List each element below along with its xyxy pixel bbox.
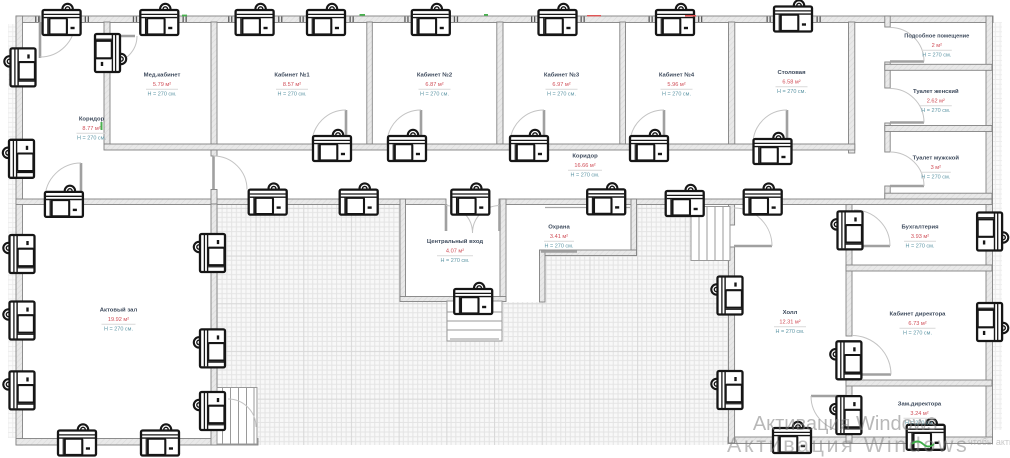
svg-text:H = 270 см.: H = 270 см. bbox=[104, 327, 133, 333]
svg-text:H = 270 см.: H = 270 см. bbox=[903, 331, 932, 337]
svg-text:6.87 м²: 6.87 м² bbox=[425, 82, 443, 88]
svg-text:5.96 м²: 5.96 м² bbox=[667, 82, 685, 88]
svg-text:2.62 м²: 2.62 м² bbox=[927, 99, 945, 105]
svg-text:H = 270 см.: H = 270 см. bbox=[544, 244, 573, 250]
svg-text:3 м²: 3 м² bbox=[931, 165, 942, 171]
svg-text:2 м²: 2 м² bbox=[932, 43, 943, 49]
svg-text:8.77 м²: 8.77 м² bbox=[82, 126, 100, 132]
svg-text:H = 270 см.: H = 270 см. bbox=[420, 92, 449, 98]
svg-text:Кабинет №1: Кабинет №1 bbox=[274, 72, 310, 79]
svg-text:8.57 м²: 8.57 м² bbox=[283, 82, 301, 88]
svg-text:Бухгалтерия: Бухгалтерия bbox=[901, 225, 939, 231]
svg-text:Кабинет №4: Кабинет №4 bbox=[659, 72, 695, 79]
svg-text:Мед.кабинет: Мед.кабинет bbox=[144, 72, 181, 79]
svg-text:H = 270 см.: H = 270 см. bbox=[921, 175, 950, 181]
svg-text:19.92 м²: 19.92 м² bbox=[108, 317, 129, 323]
svg-text:3.41 м²: 3.41 м² bbox=[550, 234, 568, 240]
svg-text:Коридор: Коридор bbox=[79, 117, 105, 123]
svg-text:6.73 м²: 6.73 м² bbox=[908, 321, 926, 327]
svg-text:16.66 м²: 16.66 м² bbox=[574, 163, 595, 169]
svg-text:H = 270 см.: H = 270 см. bbox=[905, 244, 934, 250]
svg-text:Столовая: Столовая bbox=[777, 70, 806, 76]
svg-text:H = 270 см.: H = 270 см. bbox=[277, 92, 306, 98]
svg-text:Активация Windows: Активация Windows bbox=[753, 413, 937, 435]
svg-text:H = 270 см.: H = 270 см. bbox=[440, 258, 469, 264]
svg-text:12.31 м²: 12.31 м² bbox=[779, 320, 800, 326]
svg-text:H = 270 см.: H = 270 см. bbox=[777, 89, 806, 95]
svg-text:H = 270 см.: H = 270 см. bbox=[662, 92, 691, 98]
svg-text:Туалет мужской: Туалет мужской bbox=[913, 155, 960, 162]
svg-text:5.79 м²: 5.79 м² bbox=[153, 82, 171, 88]
svg-text:6.58 м²: 6.58 м² bbox=[782, 80, 800, 86]
svg-text:H = 270 см.: H = 270 см. bbox=[147, 92, 176, 98]
svg-text:Кабинет №2: Кабинет №2 bbox=[417, 72, 453, 79]
svg-text:Подсобное помещение: Подсобное помещение bbox=[904, 33, 969, 40]
svg-text:H = 270 см.: H = 270 см. bbox=[77, 136, 106, 142]
svg-text:Центральный вход: Центральный вход bbox=[427, 238, 483, 245]
svg-text:Актовый зал: Актовый зал bbox=[100, 307, 138, 314]
svg-text:H = 270 см.: H = 270 см. bbox=[547, 92, 576, 98]
svg-text:чтобы актив: чтобы актив bbox=[968, 437, 1010, 447]
svg-text:H = 270 см.: H = 270 см. bbox=[922, 53, 951, 59]
svg-text:6.97 м²: 6.97 м² bbox=[552, 82, 570, 88]
svg-text:Кабинет №3: Кабинет №3 bbox=[544, 72, 580, 79]
svg-text:4.07 м²: 4.07 м² bbox=[446, 249, 464, 255]
svg-text:Коридор: Коридор bbox=[572, 154, 598, 160]
svg-text:Кабинет директора: Кабинет директора bbox=[890, 311, 947, 318]
svg-text:Холл: Холл bbox=[783, 310, 798, 316]
svg-text:Зам.директора: Зам.директора bbox=[898, 402, 942, 408]
svg-text:Туалет женский: Туалет женский bbox=[913, 88, 959, 95]
svg-text:3.93 м²: 3.93 м² bbox=[911, 234, 929, 240]
svg-text:H = 270 см.: H = 270 см. bbox=[921, 108, 950, 114]
svg-text:H = 270 см.: H = 270 см. bbox=[775, 329, 804, 335]
svg-text:Охрана: Охрана bbox=[548, 225, 570, 231]
svg-text:H = 270 см.: H = 270 см. bbox=[570, 173, 599, 179]
